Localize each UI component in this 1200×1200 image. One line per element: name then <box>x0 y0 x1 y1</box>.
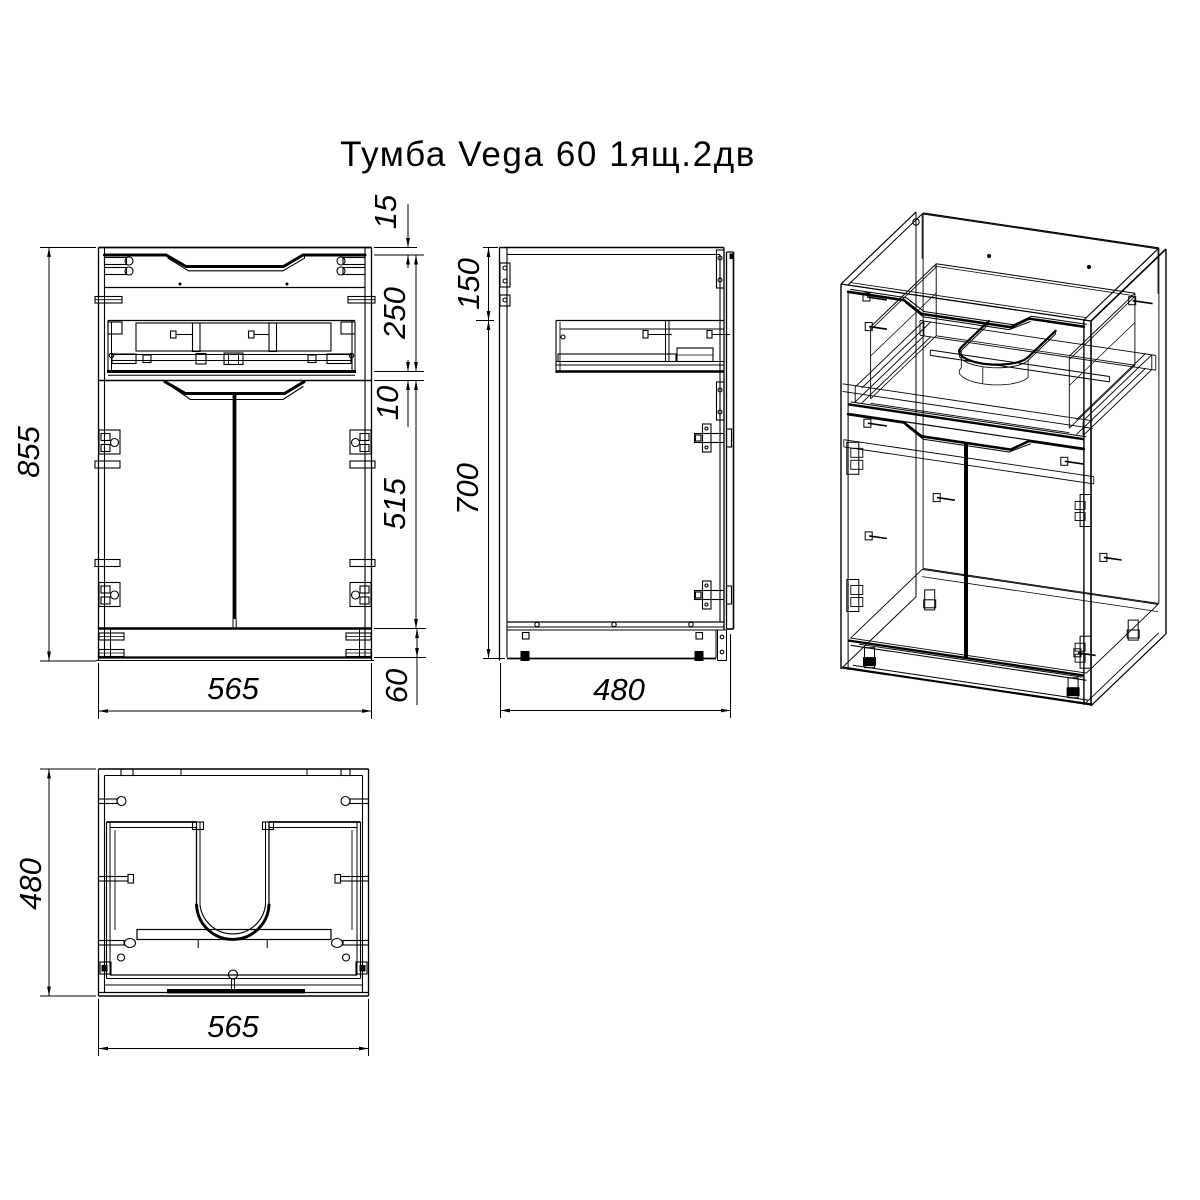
svg-text:480: 480 <box>13 858 48 910</box>
svg-text:10: 10 <box>370 386 405 420</box>
svg-text:700: 700 <box>450 463 485 515</box>
svg-text:565: 565 <box>207 671 259 706</box>
svg-text:15: 15 <box>368 194 403 229</box>
svg-text:250: 250 <box>377 287 412 340</box>
svg-text:565: 565 <box>207 1009 259 1044</box>
svg-text:Тумба Vega 60 1ящ.2дв: Тумба Vega 60 1ящ.2дв <box>340 135 756 174</box>
svg-text:60: 60 <box>379 669 414 703</box>
svg-text:855: 855 <box>11 425 46 477</box>
svg-text:480: 480 <box>593 672 645 707</box>
svg-text:515: 515 <box>377 477 412 529</box>
svg-text:150: 150 <box>451 258 486 310</box>
